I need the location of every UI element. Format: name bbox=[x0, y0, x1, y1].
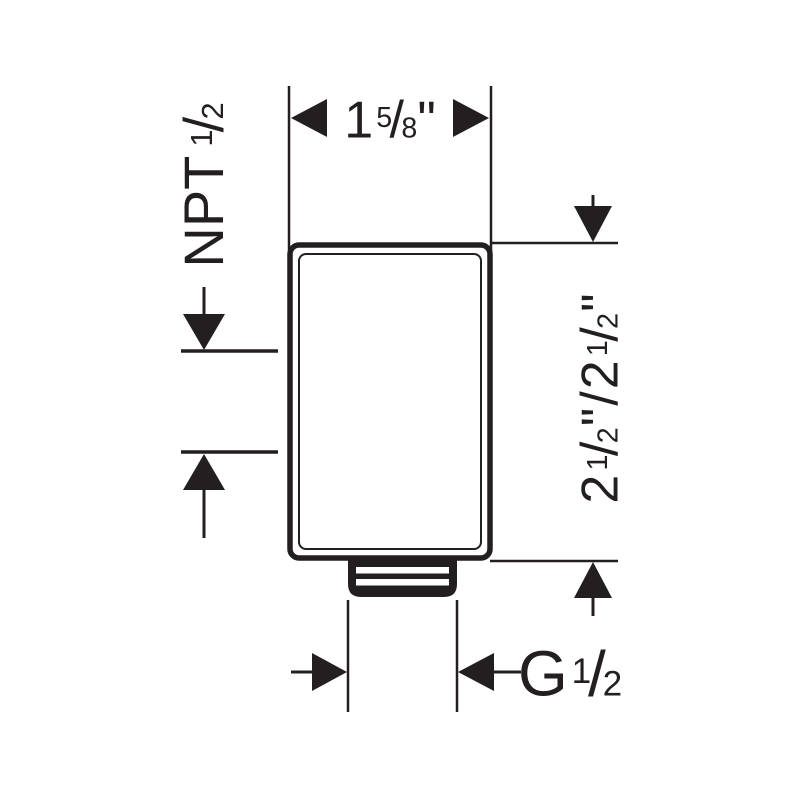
top-width-fraction: 5/8 bbox=[376, 92, 417, 154]
top-width-unit: " bbox=[417, 91, 435, 149]
height-first-whole: 2 bbox=[571, 474, 629, 504]
g-thread-denominator: 2 bbox=[603, 665, 623, 704]
height-second-unit: " bbox=[571, 292, 629, 312]
thread-stripe-1 bbox=[356, 567, 449, 574]
height-second-whole: 2 bbox=[571, 359, 629, 389]
arrowhead-left-down-icon bbox=[183, 314, 225, 350]
dim-label-npt-thread: NPT1/2 bbox=[172, 75, 232, 295]
npt-label: NPT bbox=[172, 156, 235, 268]
g-thread-fraction: 1/2 bbox=[572, 640, 623, 717]
thread-stripe-2 bbox=[356, 579, 449, 586]
g-thread-label: G bbox=[518, 638, 568, 710]
height-separator: / bbox=[571, 390, 629, 406]
technical-drawing-canvas: 15/8" NPT1/2 21/2"/21/2" G1/2 bbox=[0, 0, 800, 800]
top-width-denominator: 8 bbox=[401, 112, 417, 144]
height-first-unit: " bbox=[571, 407, 629, 427]
dim-label-g-thread: G1/2 bbox=[518, 640, 622, 717]
height-first-denominator: 2 bbox=[592, 426, 624, 443]
dim-label-height: 21/2"/21/2" bbox=[568, 258, 628, 538]
height-second-fraction: 1/2 bbox=[568, 312, 638, 356]
height-second-denominator: 2 bbox=[592, 312, 624, 329]
arrowhead-left-up-icon bbox=[183, 454, 225, 490]
npt-denominator: 2 bbox=[195, 102, 230, 119]
body-outer-outline bbox=[290, 245, 490, 558]
threaded-connector bbox=[348, 558, 457, 597]
top-width-whole: 1 bbox=[344, 91, 373, 149]
npt-fraction: 1/2 bbox=[172, 102, 243, 146]
arrowhead-bottom-right-icon bbox=[458, 653, 494, 691]
arrowhead-bottom-left-icon bbox=[312, 653, 347, 691]
arrowhead-right-up-icon bbox=[574, 562, 612, 598]
height-first-fraction: 1/2 bbox=[568, 426, 638, 470]
arrowhead-right-down-icon bbox=[574, 206, 612, 242]
dim-label-top-width: 15/8" bbox=[280, 92, 500, 154]
height-first-numerator: 1 bbox=[582, 454, 614, 471]
npt-numerator: 1 bbox=[184, 130, 219, 147]
